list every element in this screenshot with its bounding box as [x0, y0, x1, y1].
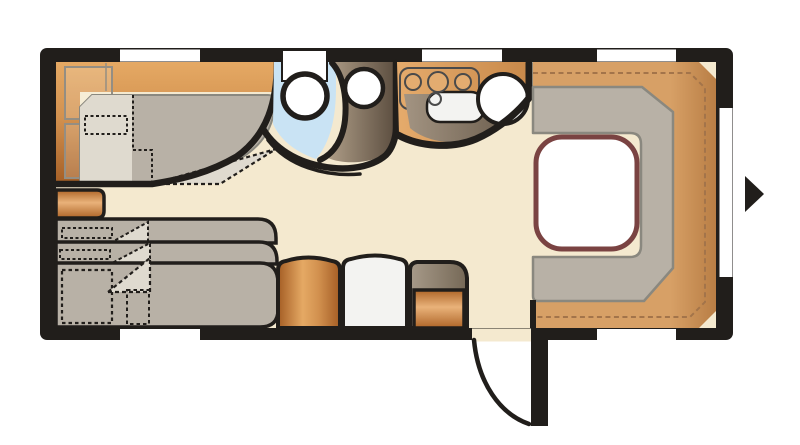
fixed-bed-area: [56, 62, 279, 186]
kitchen-sink: [478, 74, 528, 124]
floor-plan-canvas: [0, 0, 800, 445]
door-leaf: [531, 330, 548, 426]
dinette-area: [533, 62, 716, 328]
bed-pillow-zone: [80, 95, 132, 184]
washroom-area: [263, 50, 397, 174]
window-top-left: [120, 50, 200, 62]
toilet: [345, 69, 383, 107]
window-right-side: [720, 108, 733, 277]
window-bottom-left: [120, 329, 200, 341]
bunk-top: [56, 219, 276, 243]
window-bottom-right: [597, 329, 676, 341]
sink-drainer: [427, 92, 484, 122]
wardrobe: [278, 258, 340, 329]
bunk-bottom: [56, 263, 278, 327]
dinette-table: [536, 137, 637, 249]
bed-step-drawer: [56, 190, 104, 218]
entry-arrow-icon: [745, 176, 764, 212]
burner: [428, 72, 448, 92]
caravan-floor-plan: [0, 0, 800, 445]
washbasin: [283, 74, 327, 118]
cabinet-row: [278, 256, 467, 329]
window-top-middle: [422, 50, 502, 62]
fridge: [343, 256, 407, 329]
door-swing-arc: [474, 340, 529, 424]
corner-cabinet-front: [414, 290, 464, 328]
burner: [455, 74, 471, 90]
burner: [405, 74, 421, 90]
window-top-right: [597, 50, 676, 62]
bunk-beds-area: [56, 219, 278, 327]
door-opening: [472, 329, 531, 342]
bunk-middle: [56, 242, 277, 264]
